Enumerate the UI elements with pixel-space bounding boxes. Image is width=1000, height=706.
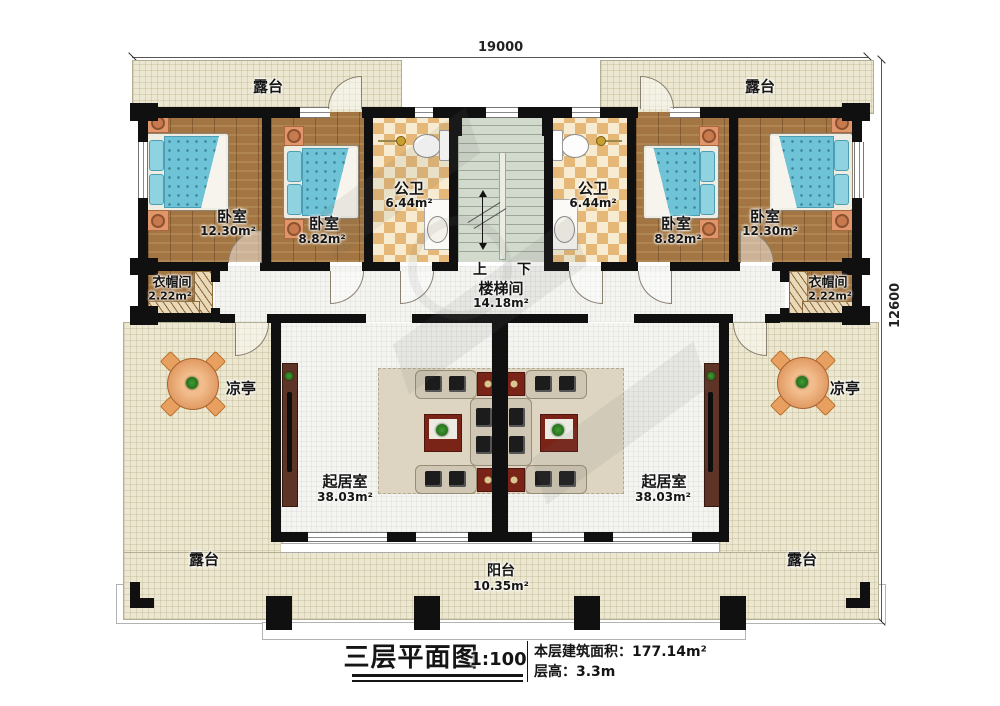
towel-knob: [396, 136, 406, 146]
room-label-terrace-bottom-right: 露台: [787, 553, 817, 568]
room-area-bedroom-right-inner: 8.82m²: [654, 233, 701, 245]
sofa: [525, 370, 587, 399]
pavilion-table-set: [167, 358, 217, 408]
dimension-height: 12600: [888, 283, 903, 328]
room-label-living-left: 起居室: [322, 475, 367, 490]
window: [415, 107, 433, 118]
wall: [719, 314, 729, 540]
floor-plan: 19000 12600: [0, 0, 1000, 706]
room-label-bedroom-left-inner: 卧室: [309, 217, 339, 232]
plant-icon: [436, 424, 448, 436]
room-area-bedroom-right-outer: 12.30m²: [742, 225, 798, 237]
wall: [138, 107, 148, 142]
pillar: [414, 596, 440, 630]
pillow: [834, 140, 849, 171]
floor-height-note: 层高：3.3m: [534, 665, 615, 679]
dimension-line-top: [132, 57, 868, 58]
nightstand: [147, 210, 169, 231]
title-divider: [527, 641, 528, 682]
wall: [262, 112, 271, 262]
window: [138, 142, 148, 198]
plant-icon: [796, 376, 808, 388]
pillow: [834, 174, 849, 205]
title-underline-2: [352, 680, 523, 682]
sofa: [415, 465, 477, 494]
room-label-cloak-left: 衣帽间: [152, 277, 191, 290]
pillow: [287, 151, 302, 182]
room-label-terrace-bottom-left: 露台: [189, 553, 219, 568]
dimension-width: 19000: [478, 40, 523, 55]
wall: [220, 314, 235, 323]
window: [572, 107, 600, 118]
plant-icon: [552, 424, 564, 436]
room-label-bedroom-right-outer: 卧室: [750, 210, 780, 225]
room-label-pavilion-right: 凉亭: [830, 382, 860, 397]
toilet-icon: [561, 134, 589, 158]
pillow: [149, 174, 164, 205]
wall: [468, 532, 532, 542]
page-title: 三层平面图: [343, 645, 478, 671]
wall: [692, 532, 729, 542]
pavilion-table-set: [777, 357, 827, 407]
room-label-bath-right: 公卫: [578, 182, 608, 197]
wall-party: [492, 314, 508, 540]
wall: [780, 262, 789, 282]
room-label-bath-left: 公卫: [394, 182, 424, 197]
bed-sheet: [646, 148, 676, 216]
wall: [271, 314, 281, 540]
wall: [387, 532, 416, 542]
window: [613, 532, 692, 542]
plinth-outline-lower: [262, 622, 746, 640]
pillow: [700, 151, 715, 182]
room-area-balcony: 10.35m²: [473, 580, 529, 592]
dimension-line-right: [881, 60, 882, 622]
wall: [138, 313, 220, 322]
floor-area-note: 本层建筑面积：177.14m²: [534, 645, 707, 659]
title-underline: [352, 674, 523, 677]
room-label-bedroom-right-inner: 卧室: [661, 217, 691, 232]
wall: [260, 262, 330, 271]
window: [486, 107, 518, 118]
bed: [145, 133, 229, 211]
arrow-up-icon: [479, 190, 487, 197]
tv-icon: [708, 392, 713, 472]
pillow: [149, 140, 164, 171]
window: [308, 532, 387, 542]
pillar: [574, 596, 600, 630]
pillar: [266, 596, 292, 630]
room-area-bath-right: 6.44m²: [569, 197, 616, 209]
nightstand: [284, 126, 304, 146]
wall: [700, 107, 862, 118]
room-label-cloak-right: 衣帽间: [808, 277, 847, 290]
bed: [643, 145, 719, 219]
bed-sheet: [196, 136, 226, 208]
wall: [508, 314, 588, 323]
room-area-stairwell: 14.18m²: [473, 297, 529, 309]
room-label-stairwell: 楼梯间: [478, 282, 523, 297]
window: [300, 107, 330, 118]
room-label-terrace-top-right: 露台: [745, 80, 775, 95]
room-label-terrace-top-left: 露台: [253, 80, 283, 95]
window: [416, 532, 468, 542]
wall: [138, 107, 300, 118]
wall: [601, 262, 638, 271]
wall: [362, 262, 400, 271]
window: [670, 107, 700, 118]
towel-knob: [596, 136, 606, 146]
pillar: [720, 596, 746, 630]
wall: [780, 313, 862, 322]
pillow: [287, 184, 302, 215]
wall: [852, 107, 862, 142]
nightstand: [699, 219, 719, 239]
wall: [271, 532, 308, 542]
window: [854, 142, 864, 198]
plant-icon: [707, 372, 715, 380]
drawing-scale: 1:100: [469, 651, 526, 669]
room-area-bedroom-left-outer: 12.30m²: [200, 225, 256, 237]
room-area-cloak-left: 2.22m²: [148, 291, 191, 302]
balcony-sill: [281, 543, 719, 553]
toilet-tank: [552, 130, 563, 161]
room-label-bedroom-left-outer: 卧室: [217, 210, 247, 225]
bed: [769, 133, 853, 211]
wall: [267, 314, 366, 323]
tv-icon: [287, 392, 292, 472]
room-area-living-right: 38.03m²: [635, 491, 691, 503]
pillow: [700, 184, 715, 215]
wall: [584, 532, 613, 542]
nightstand: [699, 126, 719, 146]
wall-corner: [846, 598, 870, 608]
wall: [765, 314, 780, 323]
wall: [627, 112, 636, 262]
room-area-living-left: 38.03m²: [317, 491, 373, 503]
room-area-bath-left: 6.44m²: [385, 197, 432, 209]
wall: [211, 262, 220, 282]
plant-icon: [186, 377, 198, 389]
room-label-balcony: 阳台: [487, 564, 515, 578]
room-area-bedroom-left-inner: 8.82m²: [298, 233, 345, 245]
plant-icon: [285, 372, 293, 380]
wall: [729, 112, 738, 262]
wall-corner: [130, 598, 154, 608]
room-area-cloak-right: 2.22m²: [808, 291, 851, 302]
towel-bar: [378, 140, 398, 142]
room-label-pavilion-left: 凉亭: [226, 382, 256, 397]
room-label-living-right: 起居室: [641, 475, 686, 490]
stair-up-label: 上: [473, 263, 487, 277]
wall: [670, 262, 740, 271]
stair-down-label: 下: [517, 263, 531, 277]
window: [532, 532, 584, 542]
bed-sheet: [772, 136, 802, 208]
nightstand: [831, 210, 853, 231]
